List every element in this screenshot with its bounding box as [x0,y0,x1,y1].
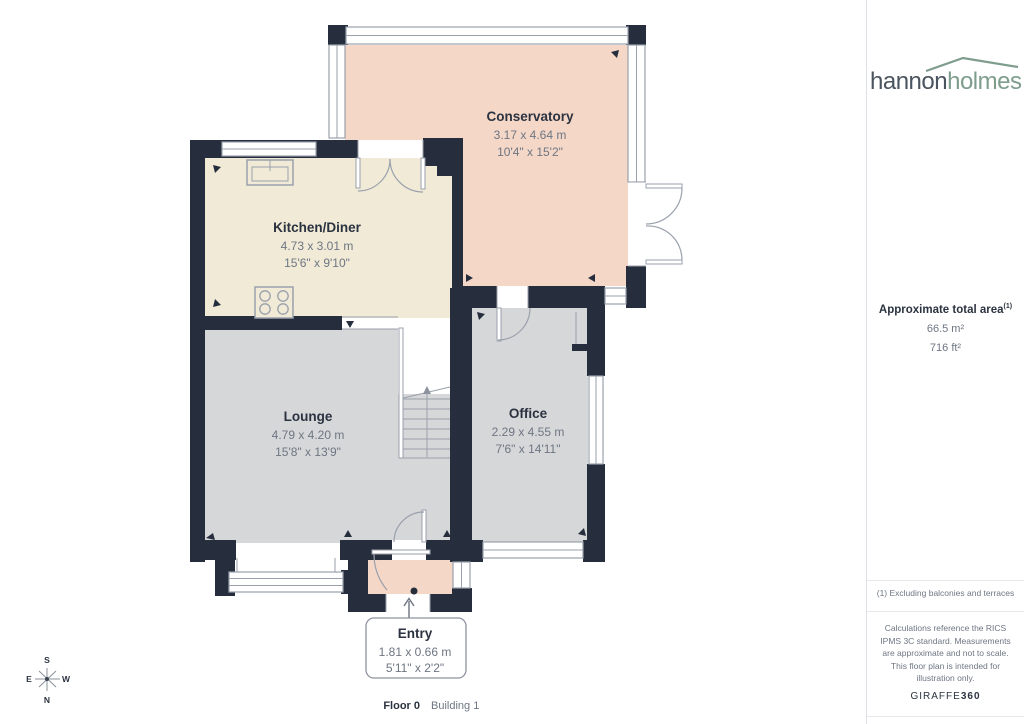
room-dim-imperial: 7'6" x 14'11" [496,442,561,456]
compass-west: W [62,674,71,684]
room-dim-imperial: 15'6" x 9'10" [284,256,350,270]
room-dim-metric: 4.73 x 3.01 m [281,239,354,253]
window-conservatory-left [329,45,345,138]
divider [867,611,1024,612]
info-panel: hannonholmes Approximate total area(1) 6… [866,0,1024,724]
room-dim-metric: 4.79 x 4.20 m [272,428,345,442]
window-conservatory-right [628,45,645,182]
window-kitchen [222,142,316,156]
window-bay-lounge [229,558,343,592]
room-name: Conservatory [486,109,574,124]
room-dim-imperial: 10'4" x 15'2" [497,145,563,159]
logo-right: holmes [947,68,1021,95]
disclaimer-text: Calculations reference the RICS IPMS 3C … [877,622,1014,685]
room-name: Lounge [284,409,333,424]
total-area-title: Approximate total area(1) [867,303,1024,316]
room-name: Kitchen/Diner [273,220,362,235]
divider [867,580,1024,581]
compass-center [45,677,49,681]
french-doors-conservatory [628,182,682,266]
agency-logo-text: hannonholmes [870,68,1022,96]
giraffe360-name: GIRAFFE [910,691,960,702]
window-conservatory-top [346,27,628,44]
total-area-block: Approximate total area(1) 66.5 m² 716 ft… [867,303,1024,354]
sink-fixture [247,160,293,185]
total-area-metric: 66.5 m² [867,323,1024,335]
front-door-knob [411,588,418,595]
room-dim-metric: 3.17 x 4.64 m [494,128,567,142]
compass: S N E W [26,655,71,705]
room-dim-imperial: 15'8" x 13'9" [275,445,341,459]
floorplan-page: Entry 1.81 x 0.66 m 5'11" x 2'2" Conserv… [0,0,1024,724]
giraffe360-suffix: 360 [961,691,981,702]
room-dim-metric: 2.29 x 4.55 m [492,425,565,439]
plan-footer: Floor 0 Building 1 [383,700,479,712]
entry-floor [368,558,453,596]
hob-fixture [255,287,293,318]
building-label: Building 1 [431,700,479,712]
room-name: Office [509,406,548,421]
room-label-conservatory: Conservatory 3.17 x 4.64 m 10'4" x 15'2" [486,109,574,159]
compass-south: S [44,655,50,665]
window-office-right [589,376,603,464]
room-dim-metric: 1.81 x 0.66 m [379,645,452,659]
room-dim-imperial: 5'11" x 2'2" [386,661,444,675]
logo-left: hannon [870,68,947,95]
giraffe360-brand: GIRAFFE360 [867,691,1024,702]
window-conservatory-bottom [605,288,626,304]
floorplan-canvas: Entry 1.81 x 0.66 m 5'11" x 2'2" Conserv… [0,0,866,724]
kitchen-floor [205,158,452,318]
floor-label: Floor 0 [383,700,420,712]
divider [867,716,1024,717]
total-area-footnote-ref: (1) [1004,303,1013,310]
room-name: Entry [398,626,433,641]
compass-north: N [44,695,50,705]
compass-east: E [26,674,32,684]
window-office-bottom [483,542,583,558]
total-area-imperial: 716 ft² [867,342,1024,354]
agency-logo: hannonholmes [870,56,1022,96]
room-label-kitchen-diner: Kitchen/Diner 4.73 x 3.01 m 15'6" x 9'10… [273,220,362,270]
window-entry [453,562,470,588]
area-footnote: (1) Excluding balconies and terraces [867,588,1024,598]
